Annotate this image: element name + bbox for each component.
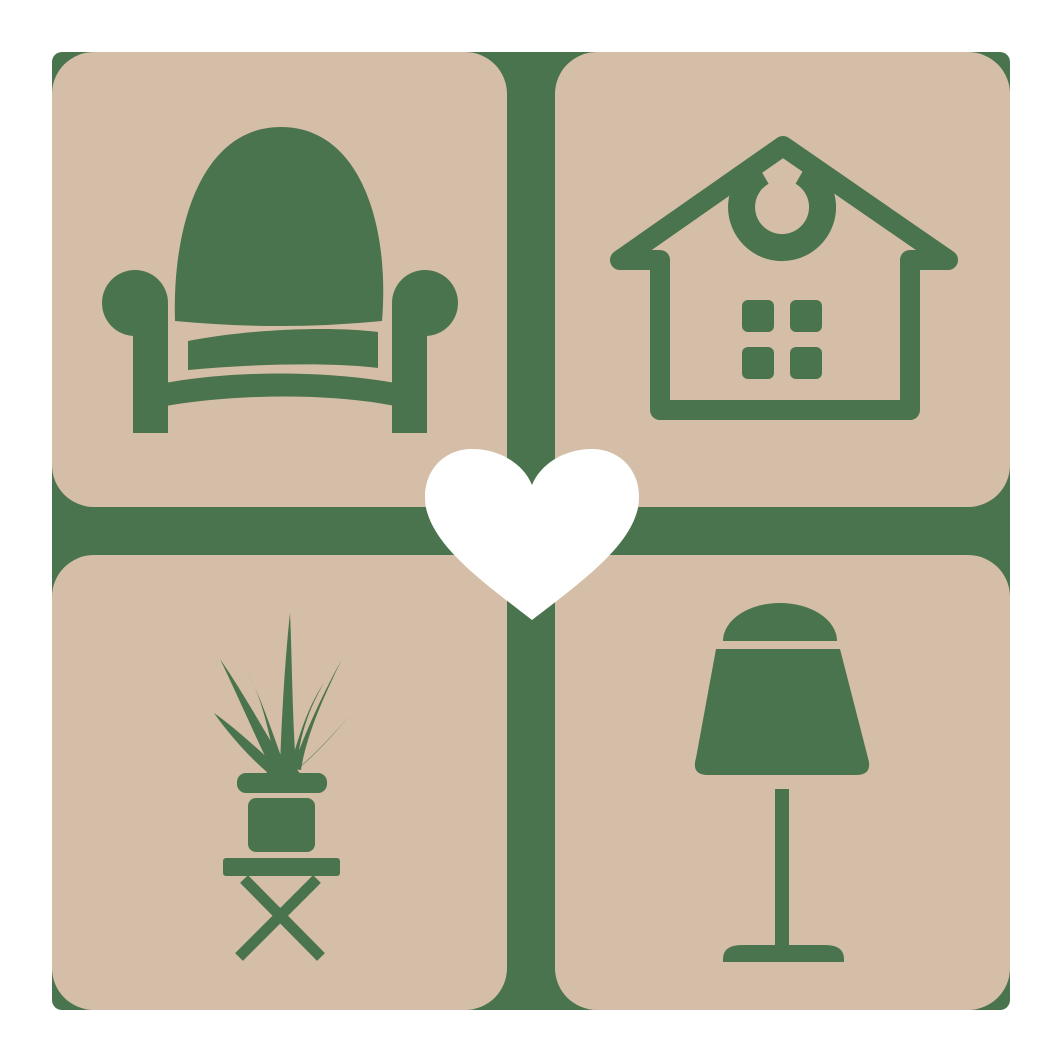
plant-stool-legs: [239, 879, 321, 957]
house-icon: [590, 110, 980, 470]
heart-overlay: [422, 447, 642, 623]
armchair-icon: [90, 110, 470, 470]
armchair-seat-cushion: [188, 329, 378, 370]
tile-armchair: [52, 52, 507, 507]
plant-pot-body: [248, 798, 315, 852]
plant-pot-rim: [237, 773, 327, 793]
tile-potted-plant: [52, 555, 507, 1010]
heart-shape: [425, 449, 639, 620]
lamp-base: [723, 945, 844, 962]
lamp-shade: [695, 649, 869, 775]
tile-table-lamp: [555, 555, 1010, 1010]
tile-house: [555, 52, 1010, 507]
armchair-back: [175, 127, 383, 326]
house-ring-ornament: [742, 172, 823, 248]
logo-canvas: [0, 0, 1063, 1063]
plant-leaves: [214, 613, 350, 775]
potted-plant-icon: [180, 595, 480, 975]
house-windows: [742, 300, 822, 379]
plant-stool-top: [223, 858, 340, 876]
lamp-stem: [775, 789, 789, 951]
armchair-right-leg: [392, 303, 427, 433]
armchair-front-rail: [160, 374, 400, 408]
lamp-cap: [723, 603, 837, 641]
armchair-left-leg: [133, 303, 168, 433]
house-outline: [620, 146, 948, 410]
table-lamp-icon: [650, 590, 970, 990]
heart-icon: [422, 447, 642, 623]
